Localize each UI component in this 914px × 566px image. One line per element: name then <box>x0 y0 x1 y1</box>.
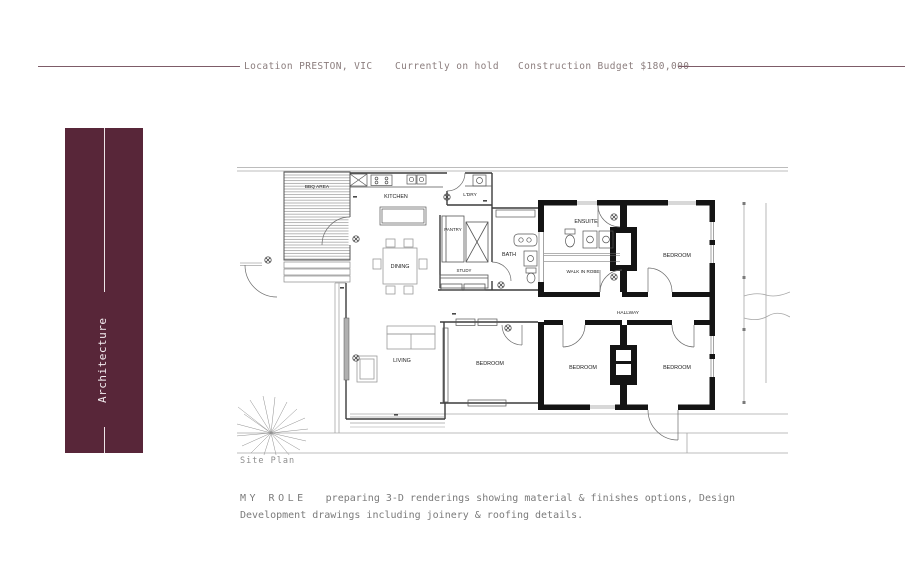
room-label-ensuite: ENSUITE <box>574 219 598 225</box>
fireplace-openings <box>616 233 631 375</box>
room-label-living: LIVING <box>393 358 411 364</box>
project-location: Location PRESTON, VIC <box>244 61 373 72</box>
project-budget: Construction Budget $180,000 <box>518 61 689 72</box>
laundry-fixtures <box>465 175 492 186</box>
section-banner: Architecture <box>65 128 143 453</box>
door-symbol <box>265 257 271 263</box>
room-label-bedroom-ne: BEDROOM <box>663 253 691 259</box>
room-labels: BBQ AREA KITCHEN L'DRY PANTRY BATH STUDY… <box>305 184 692 371</box>
room-label-bbq: BBQ AREA <box>305 184 330 190</box>
room-label-dining: DINING <box>391 264 410 270</box>
room-label-bedroom-s-east: BEDROOM <box>663 365 691 371</box>
door-symbol <box>505 325 511 331</box>
portfolio-page: { "header": { "location": "Location PRES… <box>0 0 914 566</box>
banner-line-top <box>104 128 105 292</box>
banner-line-bottom <box>104 427 105 453</box>
door-symbol <box>498 282 504 288</box>
room-label-study: STUDY <box>457 268 472 273</box>
room-label-bath: BATH <box>502 252 516 258</box>
sofa <box>357 326 435 382</box>
site-plan-drawing: BBQ AREA KITCHEN L'DRY PANTRY BATH STUDY… <box>237 163 790 455</box>
section-title: Architecture <box>96 292 113 428</box>
ensuite-fixtures <box>565 229 613 248</box>
door-symbol <box>353 355 359 361</box>
room-label-laundry: L'DRY <box>463 192 477 198</box>
existing-house-walls <box>538 200 715 410</box>
header-rule-left <box>38 66 240 67</box>
role-description: preparing 3-D renderings showing materia… <box>240 493 735 521</box>
room-label-bedroom-s-mid: BEDROOM <box>569 365 597 371</box>
plan-caption: Site Plan <box>240 456 295 466</box>
bath-fixtures <box>496 210 537 283</box>
room-label-bedroom-ext: BEDROOM <box>476 361 504 367</box>
room-label-walk-in-robe: WALK IN ROBE <box>566 269 599 274</box>
opening-tags <box>340 196 487 416</box>
header-rule-right <box>678 66 905 67</box>
room-label-kitchen: KITCHEN <box>384 194 408 200</box>
tree <box>237 396 308 455</box>
project-status: Currently on hold <box>395 61 499 72</box>
floor-plan: BBQ AREA KITCHEN L'DRY PANTRY BATH STUDY… <box>237 163 790 455</box>
door-symbol <box>611 214 617 220</box>
room-label-hallway: HALLWAY <box>617 310 640 316</box>
door-symbol <box>353 236 359 242</box>
room-label-pantry: PANTRY <box>444 227 461 232</box>
role-paragraph: MY ROLEpreparing 3-D renderings showing … <box>240 491 805 524</box>
door-symbol <box>611 274 617 280</box>
role-heading: MY ROLE <box>240 493 307 504</box>
